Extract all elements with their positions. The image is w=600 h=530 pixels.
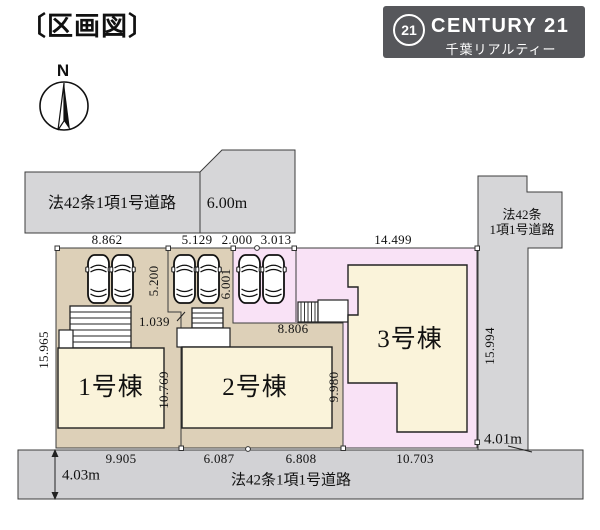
dim-lot23-boundary: 8.806: [278, 321, 309, 337]
right-road-label: 法42条 1項1号道路: [482, 208, 562, 238]
car-icon: [172, 255, 197, 303]
car-icon: [110, 255, 135, 303]
bottom-road-label: 法42条1項1号道路: [231, 469, 351, 490]
dim-lot1-boundary: 10.769: [156, 371, 172, 409]
top-road-width-label: 6.00m: [207, 195, 247, 213]
building-1-label: 1号棟: [78, 367, 144, 403]
right-road-width-label: 4.01m: [484, 432, 522, 449]
dim-top-5: 14.499: [374, 232, 412, 248]
dim-bottom-4: 10.703: [396, 451, 434, 467]
dim-bottom-2: 6.087: [204, 451, 235, 467]
dim-left-height: 15.965: [36, 331, 52, 369]
right-road-label-line1: 法42条: [482, 208, 562, 223]
porch-lot1: [59, 330, 73, 350]
porch-lot2: [177, 328, 230, 347]
dim-lot1-offset: 1.039: [139, 314, 170, 330]
car-icon: [237, 255, 262, 303]
dim-top-1: 8.862: [92, 232, 123, 248]
dim-top-3: 2.000: [222, 232, 253, 248]
dim-lot3-boundary: 9.980: [326, 372, 342, 403]
century21-seal-icon: 21: [393, 14, 425, 46]
porch-lot3: [318, 300, 348, 322]
century21-office-name: 千葉リアルティー: [431, 39, 571, 58]
dim-bottom-1: 9.905: [106, 451, 137, 467]
plot-map-page: 〔区画図〕 21 CENTURY 21 千葉リアルティー N 法42条1項1号道…: [0, 0, 600, 530]
compass-north-label: N: [57, 61, 69, 81]
dim-lot2-parking: 6.001: [218, 269, 234, 300]
century21-logo: 21 CENTURY 21 千葉リアルティー: [383, 6, 585, 58]
page-title: 〔区画図〕: [20, 6, 155, 43]
car-icon: [261, 255, 286, 303]
dim-right-height: 15.994: [482, 327, 498, 365]
dim-lot1-parking: 5.200: [146, 266, 162, 297]
century21-brand-text: CENTURY 21: [431, 15, 569, 38]
dim-top-4: 3.013: [261, 232, 292, 248]
top-road-label: 法42条1項1号道路: [48, 189, 176, 213]
building-2-label: 2号棟: [222, 367, 288, 403]
compass-icon: [40, 82, 88, 130]
car-icon: [86, 255, 111, 303]
dim-bottom-3: 6.808: [286, 451, 317, 467]
building-3-label: 3号棟: [377, 319, 443, 355]
bottom-road-width-label: 4.03m: [62, 468, 100, 485]
right-road-label-line2: 1項1号道路: [482, 223, 562, 238]
dim-top-2: 5.129: [182, 232, 213, 248]
